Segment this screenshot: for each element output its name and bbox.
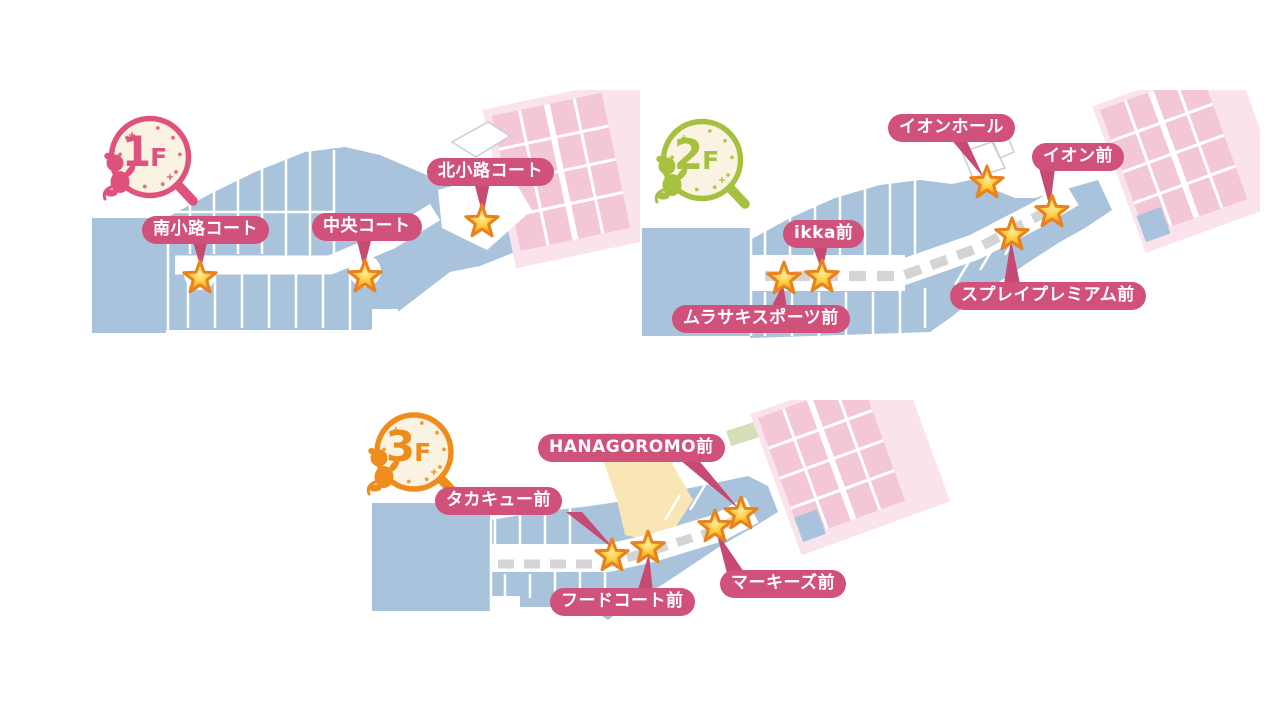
floor-map-1f: 1F 南小路コート 中央コート 北小路コート [80,90,640,350]
floor-maps-canvas: 1F 南小路コート 中央コート 北小路コート [0,0,1280,720]
floor-map-2f: 2F イオンホール イオン前 スプレイプレミアム前 ikka前 ムラサキスポーツ… [640,90,1260,360]
floor-suffix: F [702,146,718,175]
marker-label-kita-kouji-court: 北小路コート [427,158,554,186]
marker-label-foodcourt-mae: フードコート前 [550,588,695,616]
magnifier-handle [179,186,193,201]
building-left-block [372,503,490,611]
floor-map-3f: 3F HANAGOROMO前 タカキュー前 フードコート前 マーキーズ前 [360,400,960,650]
floor-number: 1 [122,127,150,176]
marker-label-splendid-premium: スプレイプレミアム前 [950,282,1146,310]
floor-badge-1f: 1F [94,103,206,215]
marker-label-aeon-mae: イオン前 [1032,143,1124,171]
marker-label-hanagoromo-mae: HANAGOROMO前 [538,434,725,462]
dept-store-area [750,400,950,555]
entrance-notch [490,596,520,612]
floor-badge-label: 1F [94,127,194,176]
marker-label-ikka-mae: ikka前 [783,220,864,248]
floor-number: 2 [674,130,702,179]
magnifier-handle [731,189,745,204]
floor-suffix: F [414,438,430,467]
dept-store-area [1092,90,1260,253]
marker-label-takaq-mae: タカキュー前 [435,487,562,515]
marker-label-murasaki-sports: ムラサキスポーツ前 [672,305,850,333]
marker-label-marquees-mae: マーキーズ前 [720,570,846,598]
marker-label-aeon-hall: イオンホール [888,114,1015,142]
marker-label-chuo-court: 中央コート [312,213,422,241]
floor-badge-label: 3F [358,422,458,471]
marker-label-minami-kouji-court: 南小路コート [142,216,269,244]
floor-badge-2f: 2F [646,106,758,218]
floor-number: 3 [386,422,414,471]
floor-badge-label: 2F [646,130,746,179]
entrance-notch [372,309,398,332]
floor-suffix: F [150,143,166,172]
